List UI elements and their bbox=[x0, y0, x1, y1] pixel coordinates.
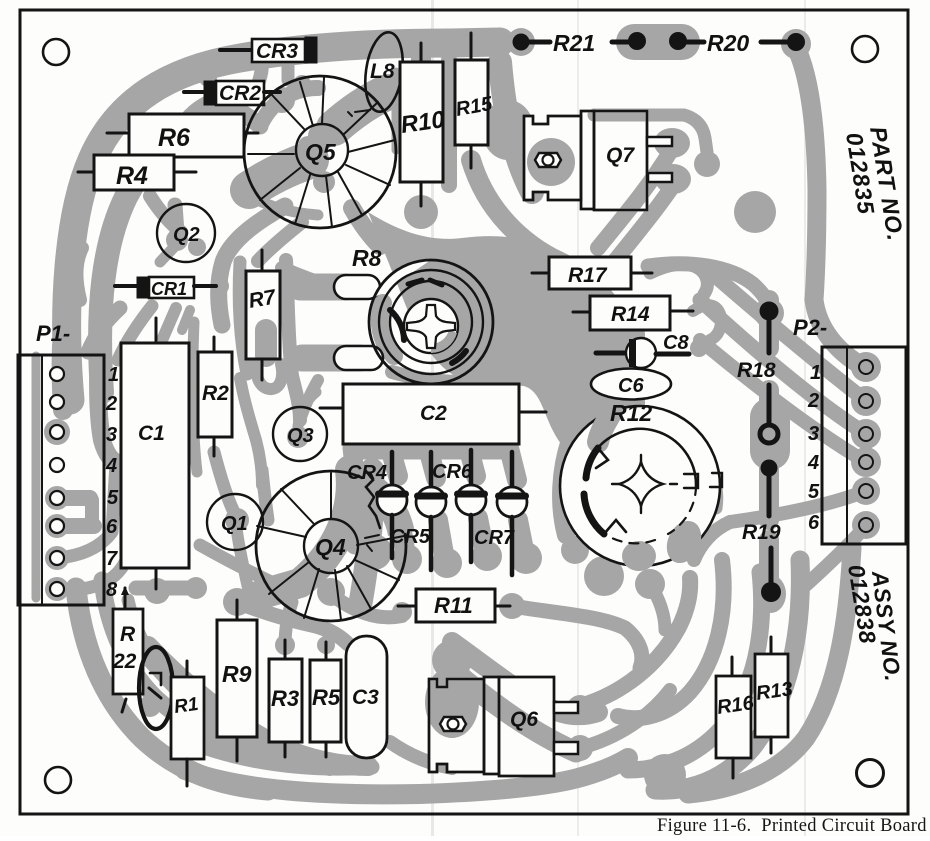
svg-text:Q7: Q7 bbox=[606, 144, 635, 167]
svg-text:22: 22 bbox=[112, 650, 137, 673]
svg-text:5: 5 bbox=[808, 481, 820, 503]
svg-text:Q4: Q4 bbox=[315, 534, 346, 560]
svg-text:C6: C6 bbox=[618, 375, 644, 397]
svg-text:R12: R12 bbox=[610, 400, 652, 426]
svg-text:R21: R21 bbox=[553, 30, 595, 56]
svg-text:C2: C2 bbox=[420, 402, 447, 425]
svg-text:Figure 11-6. Printed Circuit: Figure 11-6. Printed Circuit Board — bbox=[657, 816, 930, 836]
svg-text:L8: L8 bbox=[370, 60, 395, 83]
svg-text:4: 4 bbox=[807, 452, 819, 474]
svg-text:CR5: CR5 bbox=[390, 526, 431, 548]
svg-text:R17: R17 bbox=[568, 264, 608, 287]
svg-text:CR7: CR7 bbox=[474, 527, 515, 549]
svg-text:R3: R3 bbox=[271, 686, 299, 711]
svg-text:R8: R8 bbox=[352, 245, 382, 271]
svg-text:CR2: CR2 bbox=[219, 82, 261, 105]
svg-text:6: 6 bbox=[808, 512, 820, 534]
svg-text:6: 6 bbox=[106, 516, 118, 538]
svg-text:CR4: CR4 bbox=[347, 462, 387, 484]
svg-text:R: R bbox=[120, 623, 136, 646]
svg-text:1: 1 bbox=[108, 364, 119, 386]
svg-text:R4: R4 bbox=[116, 162, 148, 190]
svg-text:3: 3 bbox=[808, 423, 819, 445]
svg-text:2: 2 bbox=[807, 390, 819, 412]
svg-text:P2-: P2- bbox=[793, 315, 827, 340]
svg-text:Q3: Q3 bbox=[287, 425, 314, 447]
svg-text:R5: R5 bbox=[312, 685, 341, 710]
svg-text:C3: C3 bbox=[352, 686, 379, 709]
svg-text:1: 1 bbox=[810, 362, 821, 384]
svg-text:2: 2 bbox=[105, 393, 117, 415]
svg-text:Q5: Q5 bbox=[305, 139, 337, 165]
svg-text:CR6: CR6 bbox=[432, 461, 473, 483]
svg-text:4: 4 bbox=[105, 455, 117, 477]
svg-text:CR3: CR3 bbox=[256, 40, 298, 63]
svg-text:Q6: Q6 bbox=[510, 708, 538, 731]
svg-text:Q2: Q2 bbox=[173, 224, 200, 246]
svg-text:R19: R19 bbox=[742, 521, 781, 544]
svg-text:C1: C1 bbox=[138, 422, 165, 445]
svg-text:R9: R9 bbox=[222, 661, 252, 687]
svg-text:R18: R18 bbox=[737, 359, 776, 382]
svg-text:8: 8 bbox=[106, 579, 118, 601]
svg-text:5: 5 bbox=[107, 487, 119, 509]
svg-text:Q1: Q1 bbox=[221, 513, 248, 535]
svg-text:C8: C8 bbox=[663, 332, 689, 354]
svg-text:P1-: P1- bbox=[36, 321, 70, 346]
svg-text:R11: R11 bbox=[434, 593, 473, 618]
svg-text:R1: R1 bbox=[173, 694, 200, 718]
svg-text:CR1: CR1 bbox=[151, 279, 187, 299]
svg-text:R7: R7 bbox=[247, 285, 279, 313]
svg-text:R14: R14 bbox=[611, 303, 650, 326]
svg-text:R20: R20 bbox=[707, 30, 749, 56]
svg-text:R6: R6 bbox=[158, 124, 191, 152]
svg-text:R2: R2 bbox=[202, 382, 229, 405]
svg-text:3: 3 bbox=[106, 424, 117, 446]
svg-text:7: 7 bbox=[106, 548, 118, 570]
